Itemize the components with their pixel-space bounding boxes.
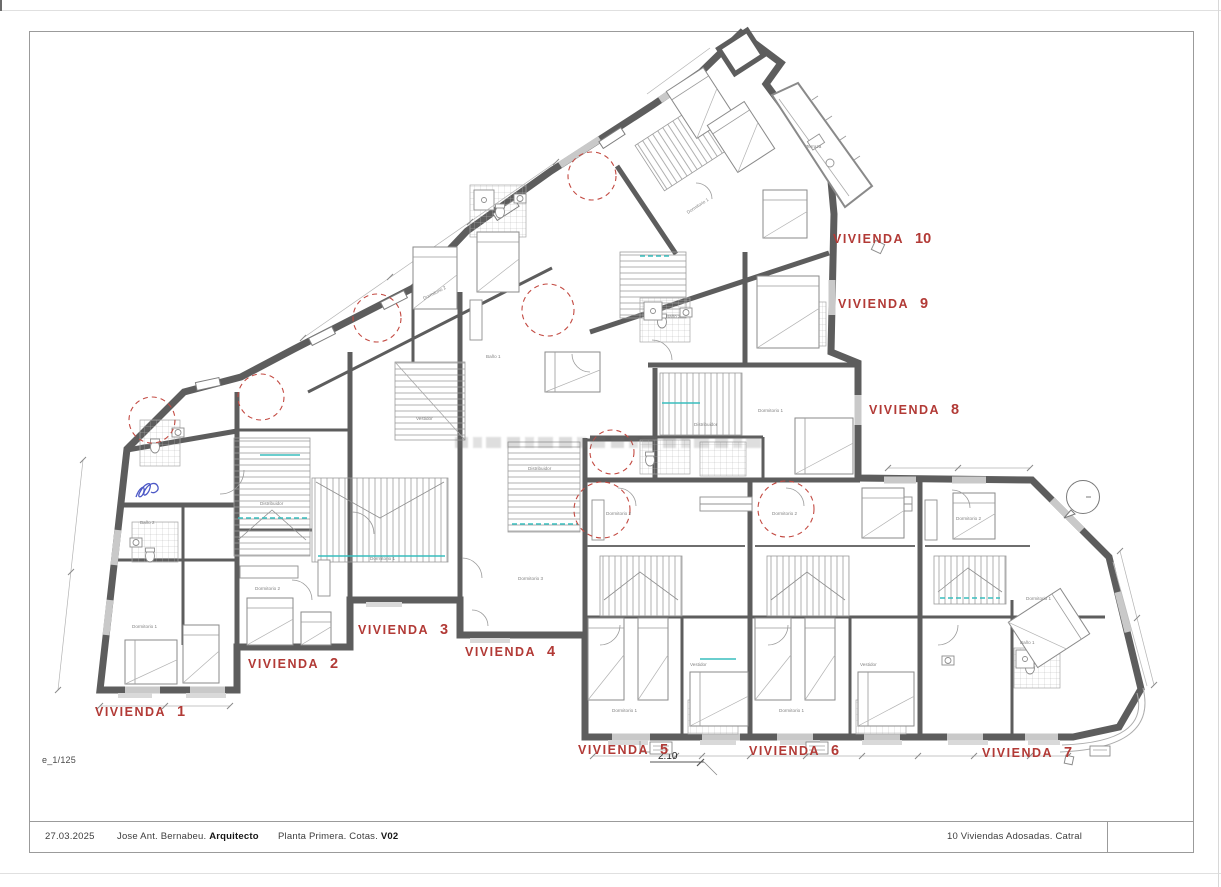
scale-note: e_1/125 [42, 755, 76, 765]
room-label: Dormitorio 1 [370, 556, 395, 561]
room-label: Dormitorio 1 [132, 624, 157, 629]
toilet-icon [496, 204, 505, 218]
vivienda-label-number: 7 [1064, 745, 1072, 761]
sink-icon [514, 194, 526, 203]
vivienda-label-2: VIVIENDA2 [248, 656, 338, 672]
vivienda-label-number: 1 [177, 704, 185, 720]
vivienda-label-word: VIVIENDA [248, 657, 319, 671]
room-label: Vestidor [860, 662, 877, 667]
bed-icon [413, 247, 457, 309]
vivienda-label-number: 6 [831, 743, 839, 759]
bed-icon [588, 618, 624, 700]
vivienda-label-word: VIVIENDA [838, 297, 909, 311]
bed-icon [755, 618, 791, 700]
drawing-viewer-page: 2.10 Dormitorio 1Baño 2Dormit [0, 0, 1221, 887]
room-label: Dormitorio 2 [956, 516, 981, 521]
author-name: Jose Ant. Bernabeu. [117, 831, 206, 842]
room-label: Dormitorio 1 [758, 408, 783, 413]
vivienda-label-1: VIVIENDA1 [95, 704, 185, 720]
titleblock-drawing-title: Planta Primera. Cotas. V02 [278, 831, 398, 842]
bed-icon [795, 418, 853, 474]
vivienda-label-number: 8 [951, 402, 959, 418]
bed-icon [757, 276, 819, 348]
vivienda-label-10: VIVIENDA10 [833, 231, 931, 247]
drawing-version: V02 [381, 831, 399, 842]
bed-icon [690, 672, 748, 726]
sink-icon [130, 538, 142, 547]
vivienda-label-number: 4 [547, 644, 555, 660]
vivienda-label-word: VIVIENDA [982, 746, 1053, 760]
vivienda-label-number: 10 [915, 231, 931, 247]
vivienda-label-word: VIVIENDA [95, 705, 166, 719]
bed-icon [247, 598, 293, 645]
vivienda-label-number: 9 [920, 296, 928, 312]
room-label: Distribuidor [694, 422, 718, 427]
vivienda-label-7: VIVIENDA7 [982, 745, 1072, 761]
vivienda-label-9: VIVIENDA9 [838, 296, 928, 312]
vivienda-label-word: VIVIENDA [465, 645, 536, 659]
room-label: Dormitorio 2 [606, 511, 631, 516]
vivienda-label-word: VIVIENDA [869, 403, 940, 417]
watermark [455, 437, 767, 448]
shower-icon [644, 302, 662, 320]
toilet-icon [151, 439, 160, 453]
room-label: Dormitorio 1 [1026, 596, 1051, 601]
vivienda-label-5: VIVIENDA5 [578, 742, 668, 758]
titleblock-author: Jose Ant. Bernabeu. Arquitecto [117, 831, 259, 842]
vivienda-label-6: VIVIENDA6 [749, 743, 839, 759]
drawing-title: Planta Primera. Cotas. [278, 831, 378, 842]
vivienda-label-4: VIVIENDA4 [465, 644, 555, 660]
room-label: Dormitorio 2 [255, 586, 280, 591]
vivienda-label-8: VIVIENDA8 [869, 402, 959, 418]
vivienda-label-word: VIVIENDA [358, 623, 429, 637]
room-label: Baño 2 [666, 314, 681, 319]
room-label: Baño 2 [140, 520, 155, 525]
titleblock-date: 27.03.2025 [45, 831, 95, 842]
bed-icon [858, 672, 914, 726]
bed-icon [183, 625, 219, 683]
room-label: Dormitorio 1 [612, 708, 637, 713]
vivienda-label-number: 2 [330, 656, 338, 672]
bed-icon [763, 190, 807, 238]
vivienda-label-word: VIVIENDA [749, 744, 820, 758]
room-label: Distribuidor [260, 501, 284, 506]
bed-icon [638, 618, 668, 700]
sink-icon [172, 428, 184, 437]
vivienda-label-word: VIVIENDA [833, 232, 904, 246]
sink-icon [942, 656, 954, 665]
room-label: Vestidor [416, 416, 433, 421]
bed-icon [862, 488, 904, 538]
bed-icon [477, 232, 519, 292]
bed-icon [125, 640, 177, 684]
vivienda-label-word: VIVIENDA [578, 743, 649, 757]
bed-icon [301, 612, 331, 645]
room-label: Terraza [806, 144, 822, 149]
vivienda-label-number: 5 [660, 742, 668, 758]
sink-icon [680, 308, 692, 317]
toilet-icon [646, 452, 655, 466]
north-circle-icon [1064, 481, 1100, 519]
room-label: Vestidor [690, 662, 707, 667]
room-label: Baño 1 [486, 354, 501, 359]
room-label: Dormitorio 3 [518, 576, 543, 581]
room-label: Dormitorio 1 [779, 708, 804, 713]
toilet-icon [146, 548, 155, 562]
vivienda-label-number: 3 [440, 622, 448, 638]
room-label: Dormitorio 2 [772, 511, 797, 516]
titleblock-project: 10 Viviendas Adosadas. Catral [912, 831, 1082, 842]
vivienda-label-3: VIVIENDA3 [358, 622, 448, 638]
author-role: Arquitecto [209, 831, 259, 842]
room-label: Distribuidor [528, 466, 552, 471]
room-label: Baño 1 [1020, 640, 1035, 645]
bed-icon [805, 618, 835, 700]
